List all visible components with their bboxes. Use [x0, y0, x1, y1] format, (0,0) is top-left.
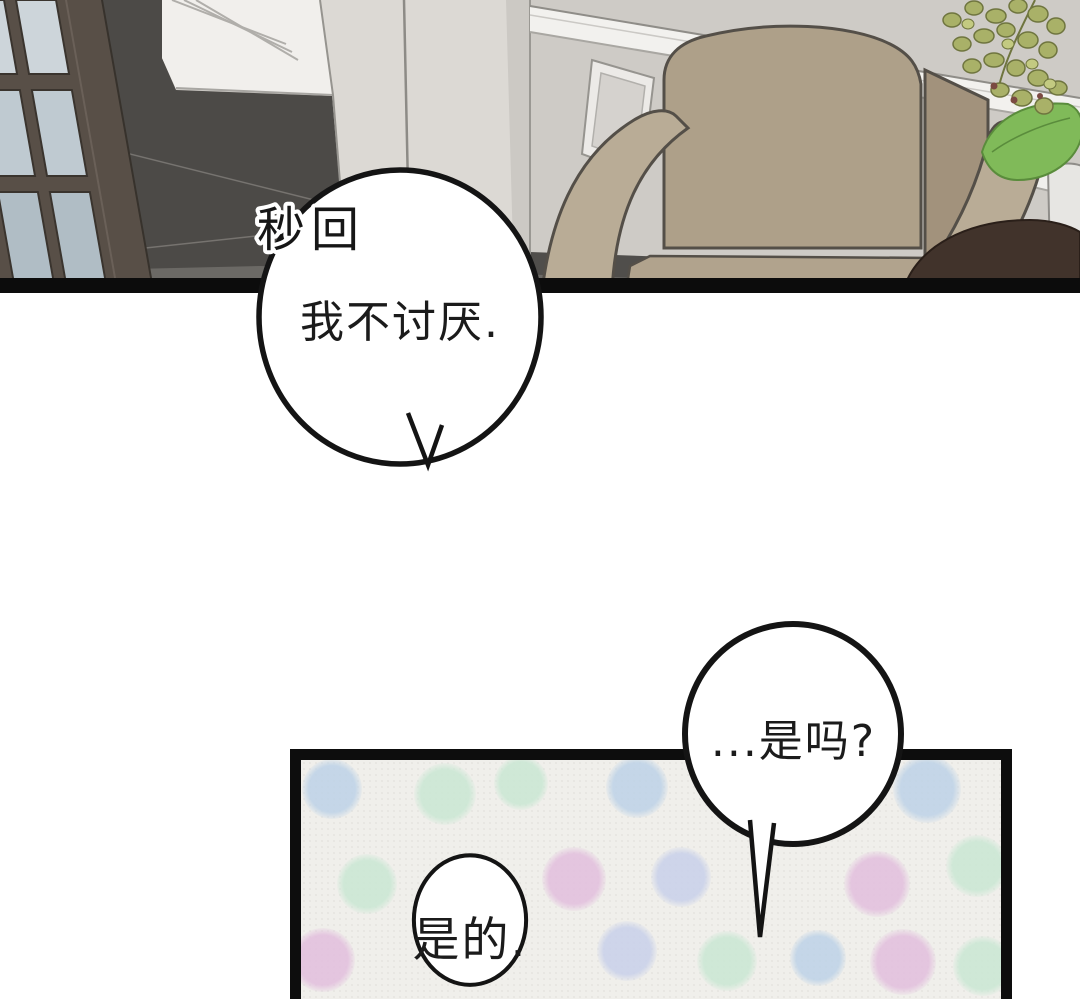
handwritten-label-text: 秒回 — [257, 202, 365, 258]
bubble-1-text: 我不讨厌. — [255, 301, 545, 345]
polka-dot — [301, 928, 355, 992]
polka-dot — [953, 936, 1001, 996]
white-wall-band — [162, 0, 333, 95]
armchair-back-cushion — [664, 26, 921, 248]
polka-dot — [946, 835, 1001, 897]
polka-dot — [414, 763, 476, 825]
polka-dot — [597, 921, 657, 981]
bubble-2-outline — [676, 617, 911, 947]
bubble-3-text: 是的. — [372, 917, 568, 964]
handwritten-label: 秒回 — [246, 190, 376, 262]
bubble-2-text: ...是吗? — [676, 720, 911, 764]
comic-page: 我不讨厌. ...是吗? 是的. 秒回 — [0, 0, 1080, 999]
polka-dot — [606, 760, 668, 818]
polka-dot — [302, 760, 362, 819]
polka-dot — [494, 760, 548, 810]
speech-bubble-2 — [676, 617, 911, 947]
